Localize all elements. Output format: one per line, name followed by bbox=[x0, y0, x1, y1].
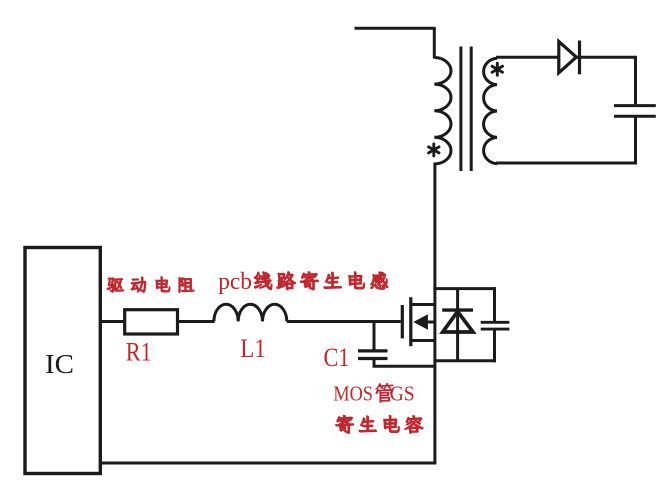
svg-text:C1: C1 bbox=[324, 342, 350, 372]
svg-text:pcb: pcb bbox=[218, 269, 252, 295]
svg-text:L1: L1 bbox=[240, 333, 265, 363]
svg-text:R1: R1 bbox=[126, 338, 152, 367]
svg-text:MOS: MOS bbox=[333, 382, 373, 406]
svg-text:GS: GS bbox=[390, 382, 415, 406]
svg-text:IC: IC bbox=[45, 349, 74, 379]
